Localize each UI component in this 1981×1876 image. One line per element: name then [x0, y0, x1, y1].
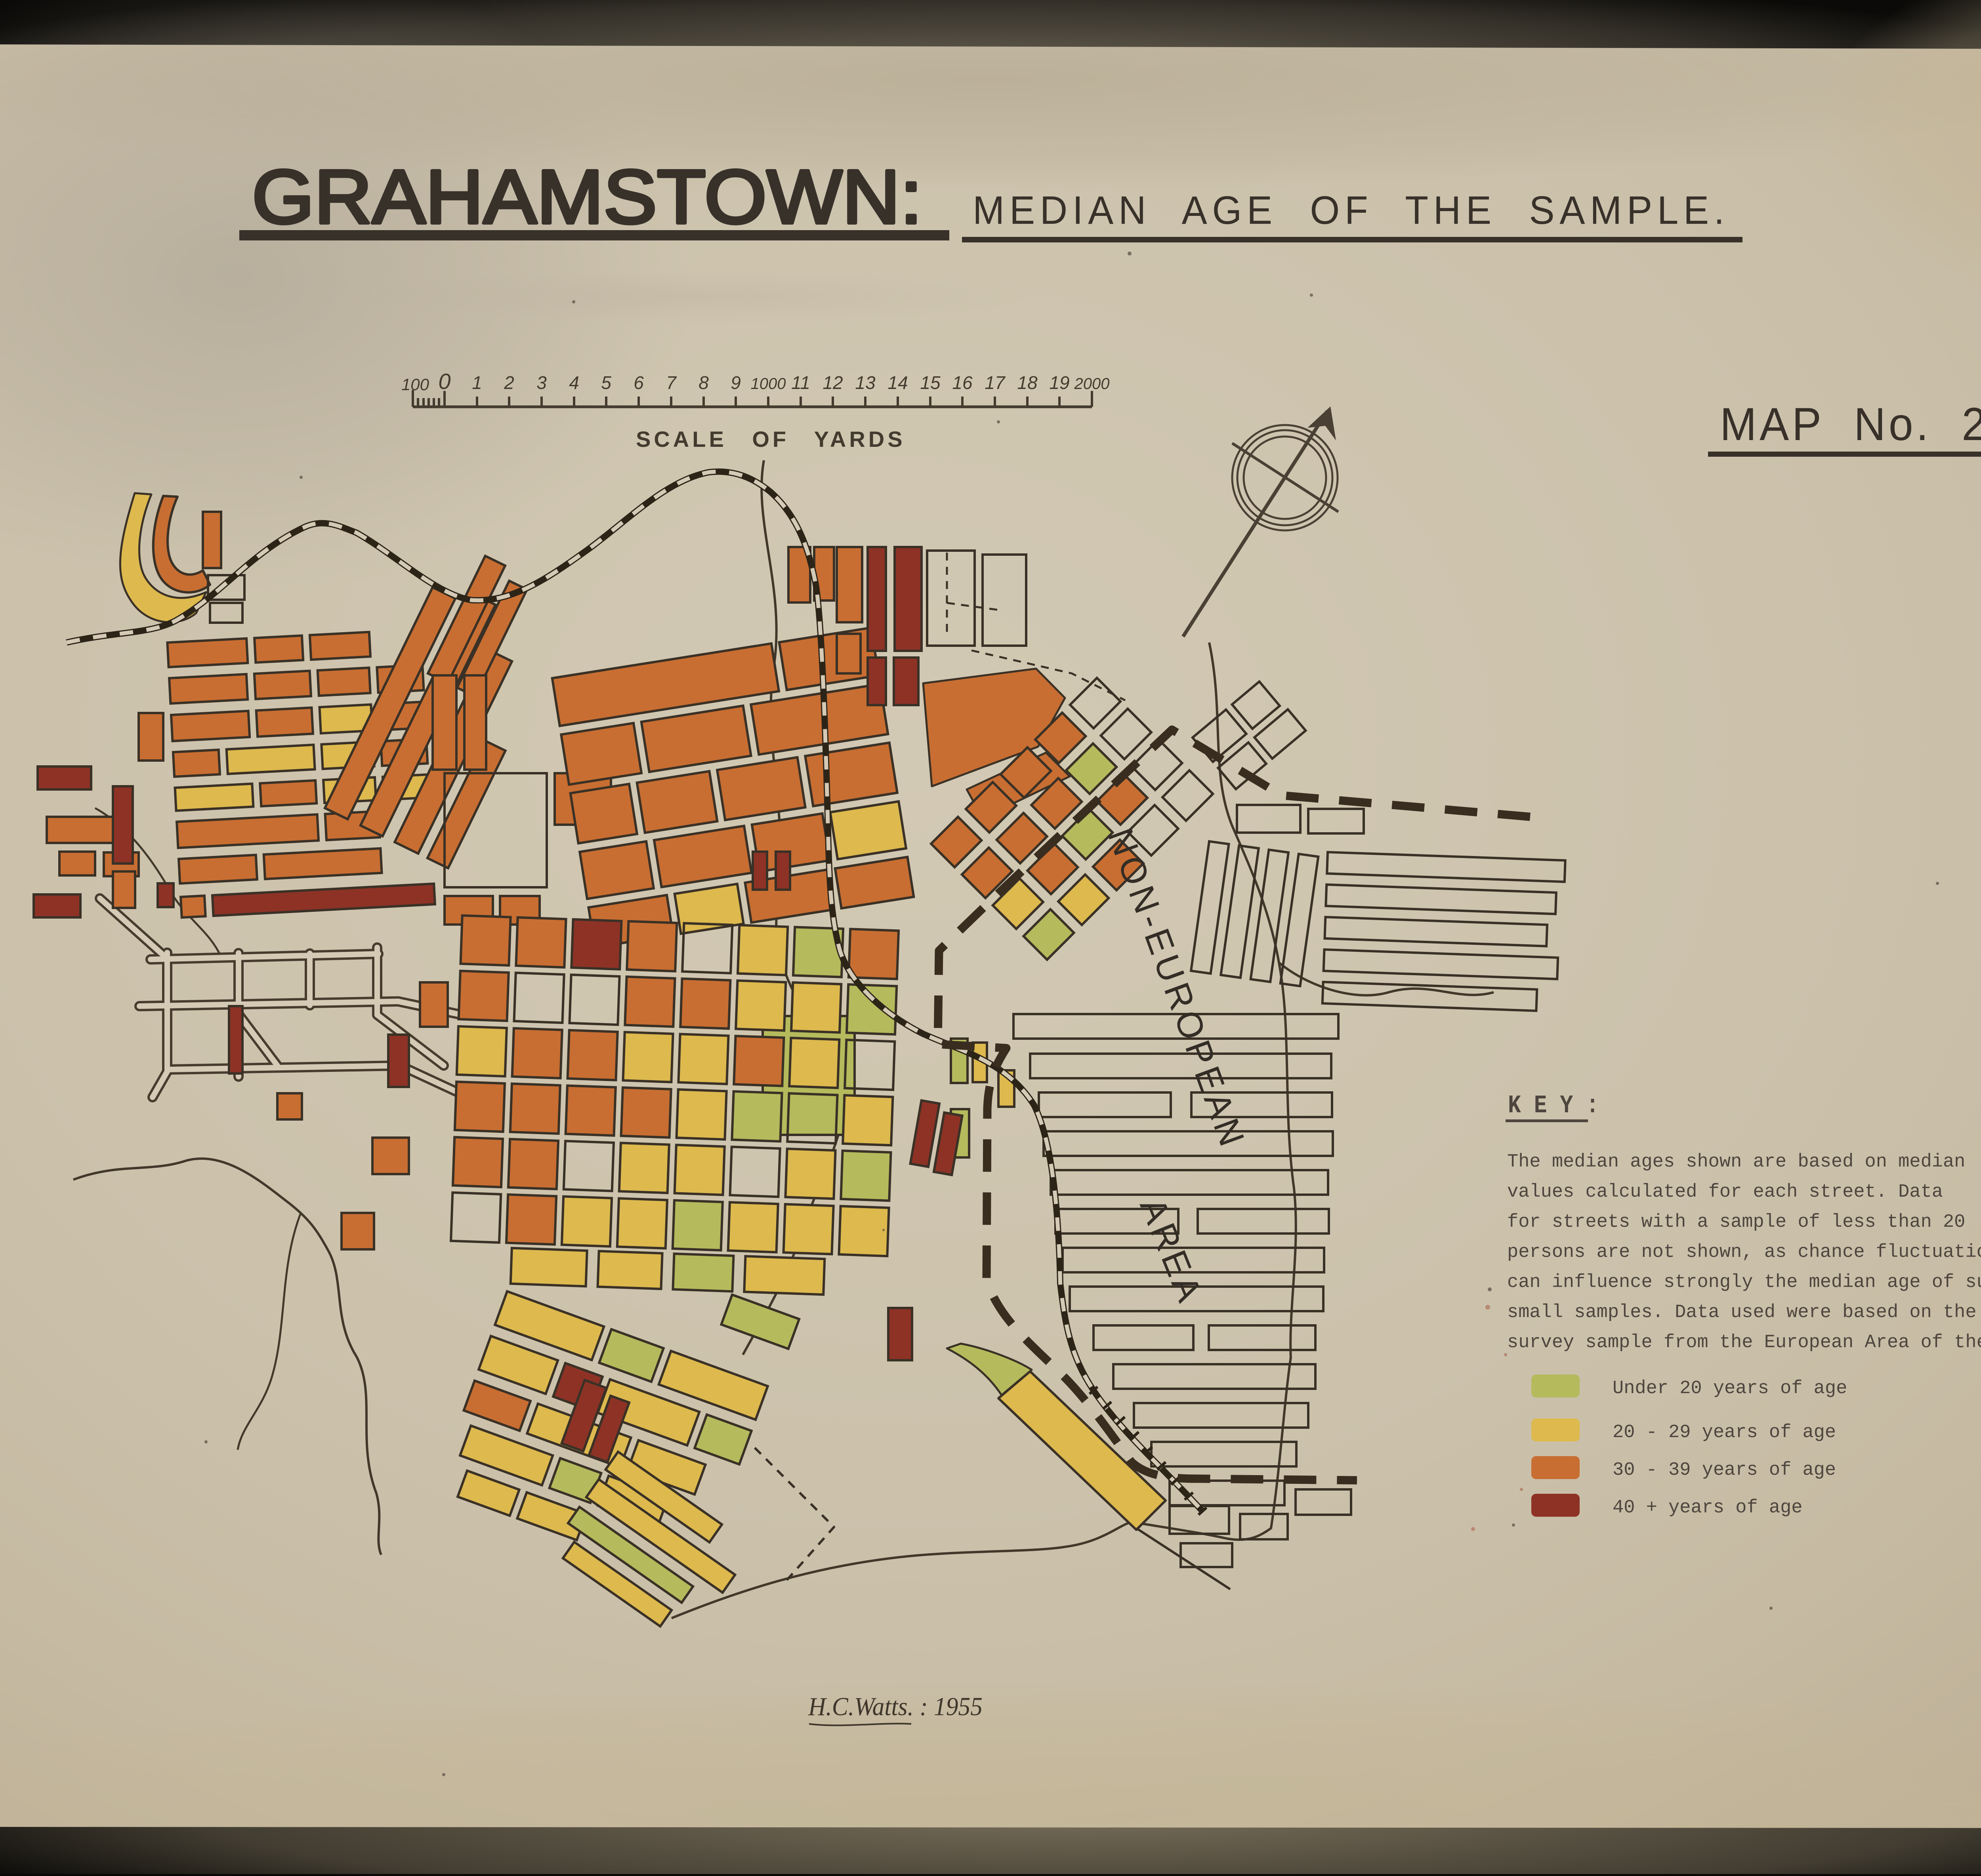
- svg-text:19: 19: [1049, 372, 1069, 393]
- svg-text:3: 3: [536, 372, 547, 393]
- svg-text:2000: 2000: [1074, 375, 1110, 393]
- svg-text:11: 11: [791, 372, 810, 393]
- svg-text:12: 12: [823, 372, 843, 393]
- svg-text:8: 8: [699, 372, 709, 393]
- svg-text:17: 17: [985, 372, 1006, 393]
- svg-text:SCALE OF YARDS: SCALE OF YARDS: [636, 427, 906, 452]
- svg-text:small samples. Data used were: small samples. Data used were based on t…: [1507, 1302, 1977, 1323]
- svg-text:values calculated for each str: values calculated for each street. Data: [1507, 1182, 1943, 1203]
- svg-text:MAP No. 20: MAP No. 20: [1720, 398, 1981, 450]
- svg-text:100: 100: [401, 375, 429, 394]
- svg-text:15: 15: [920, 372, 941, 393]
- svg-text:The median ages shown are base: The median ages shown are based on media…: [1507, 1152, 1965, 1172]
- svg-text:18: 18: [1017, 372, 1038, 393]
- svg-text:14: 14: [887, 372, 908, 393]
- svg-text:H.C.Watts. : 1955: H.C.Watts. : 1955: [808, 1692, 983, 1721]
- svg-text:K E Y :: K E Y :: [1508, 1092, 1599, 1120]
- svg-text:MEDIAN AGE OF THE SAMPLE.: MEDIAN AGE OF THE SAMPLE.: [973, 188, 1729, 233]
- svg-text:Under 20 years of age: Under 20 years of age: [1613, 1378, 1847, 1399]
- svg-text:2: 2: [504, 372, 514, 393]
- svg-text:30 - 39 years of age: 30 - 39 years of age: [1613, 1460, 1836, 1481]
- svg-text:4: 4: [569, 372, 579, 393]
- svg-text:5: 5: [601, 372, 611, 393]
- svg-text:9: 9: [731, 372, 741, 393]
- svg-text:40 + years of age: 40 + years of age: [1613, 1497, 1802, 1518]
- svg-text:1: 1: [472, 372, 482, 393]
- svg-text:can influence strongly the med: can influence strongly the median age of…: [1507, 1272, 1981, 1293]
- svg-text:6: 6: [634, 372, 644, 393]
- svg-text:persons are not shown, as chan: persons are not shown, as chance fluctua…: [1507, 1242, 1981, 1263]
- svg-text:GRAHAMSTOWN:: GRAHAMSTOWN:: [252, 154, 922, 239]
- svg-text:13: 13: [855, 372, 876, 393]
- svg-text:16: 16: [952, 372, 973, 393]
- svg-text:7: 7: [666, 372, 677, 393]
- svg-text:0: 0: [438, 369, 450, 394]
- svg-text:survey sample from the Europea: survey sample from the European Area of …: [1507, 1332, 1981, 1353]
- svg-text:1000: 1000: [751, 375, 786, 393]
- svg-text:for streets with a sample of l: for streets with a sample of less than 2…: [1507, 1212, 1965, 1233]
- svg-text:20 - 29 years of age: 20 - 29 years of age: [1613, 1422, 1836, 1443]
